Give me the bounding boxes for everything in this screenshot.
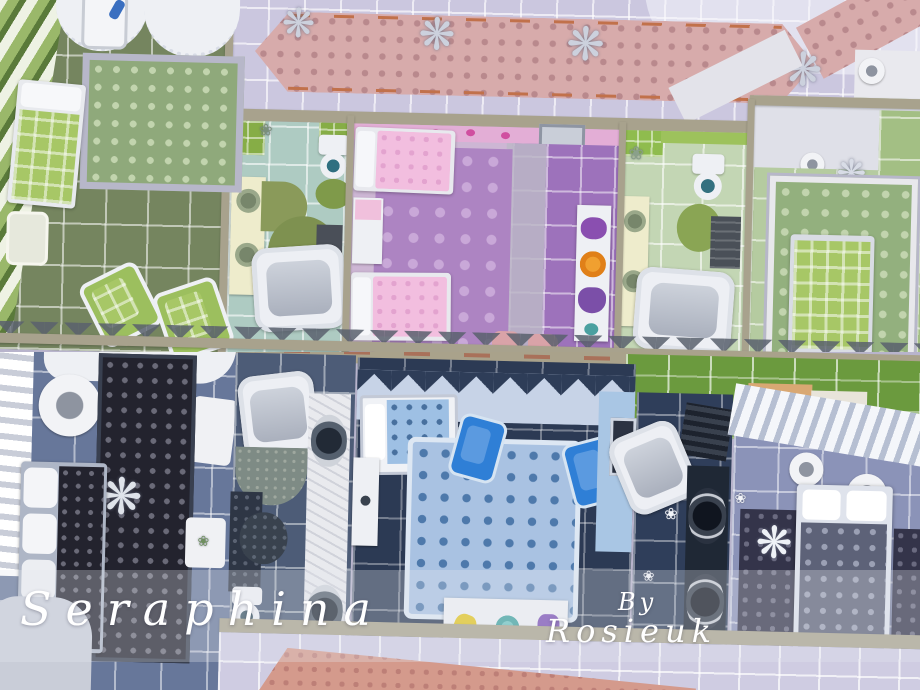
bed-double: [788, 234, 875, 352]
bed-blanket-plaid: [11, 109, 79, 204]
flower-icon: ❀: [734, 491, 746, 505]
sink-basin-dark: [688, 488, 727, 545]
kids-dresser: [351, 457, 379, 546]
bed-blanket: [373, 276, 447, 337]
bathtub: [251, 243, 348, 333]
bed-pillow: [802, 489, 841, 520]
bed-pillow: [846, 490, 887, 521]
toy-purple: [580, 217, 607, 240]
credit-author: Rosieuk: [546, 612, 717, 650]
lot-title: Seraphina: [20, 582, 385, 636]
wall-art-white: ❀: [185, 517, 226, 568]
toy-teal: [584, 323, 598, 335]
armchair-cushion: [90, 276, 141, 330]
chandelier-icon: ❋: [755, 521, 793, 566]
leafy-rug: [80, 53, 245, 193]
bedroom-chair: [6, 211, 49, 266]
sink-basin-dark: [310, 414, 347, 467]
upper-floorplan-scene: ❋ ❋ ❋ ❋ ❀: [0, 0, 920, 352]
toy-orange-sun: [580, 251, 607, 278]
bed-pillow: [365, 404, 386, 460]
leaf-decor-icon: ❀: [259, 123, 273, 139]
bed-blanket-plaid: [792, 240, 871, 350]
pony-art: [466, 129, 475, 136]
green-wall-strip: [661, 131, 749, 145]
nightstand-top: [355, 199, 381, 220]
kids-bed: [353, 127, 456, 195]
sink-basin: [624, 210, 647, 233]
shower-grate: [678, 402, 734, 461]
nightstand: [352, 197, 384, 264]
armchair-cushion: [459, 424, 492, 465]
upper-floorplan-photo: ❋ ❋ ❋ ❋ ❀: [0, 0, 920, 352]
flower-icon: ❀: [664, 507, 678, 523]
bed-pillow: [22, 513, 57, 554]
shower-panel: [710, 216, 741, 269]
sims-lot-showcase-image: ❋ ❋ ❋ ❋ ❀: [0, 0, 920, 690]
dresser-knob: [360, 496, 370, 506]
bed-pillow: [355, 131, 375, 188]
toy-purple-cat: [578, 287, 607, 314]
chandelier-icon: ❋: [418, 13, 456, 58]
chandelier-icon: ❋: [281, 4, 315, 45]
leaf-decor-icon: ❀: [628, 144, 644, 162]
bed-pillow: [353, 277, 371, 335]
sprig-icon: ❀: [197, 534, 209, 548]
chandelier-icon: ❋: [566, 21, 606, 68]
bed-pillow: [23, 467, 58, 508]
bed-blanket: [375, 130, 451, 191]
bed-pillow: [20, 82, 82, 112]
bed-double: [7, 79, 86, 209]
toy-dresser: [574, 205, 611, 342]
